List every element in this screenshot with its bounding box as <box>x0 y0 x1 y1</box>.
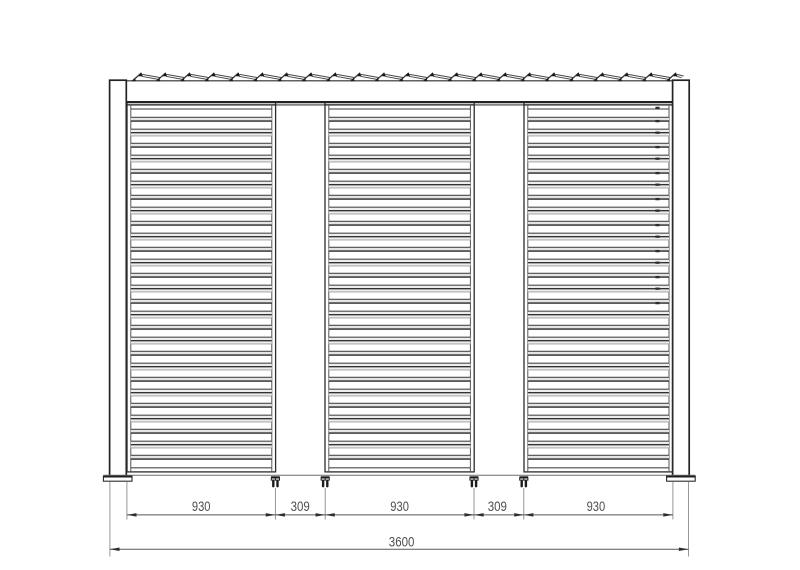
svg-text:309: 309 <box>291 499 310 514</box>
svg-text:930: 930 <box>192 499 211 514</box>
svg-text:930: 930 <box>587 499 606 514</box>
svg-text:3600: 3600 <box>389 534 415 549</box>
svg-text:309: 309 <box>488 499 507 514</box>
svg-text:930: 930 <box>390 499 409 514</box>
